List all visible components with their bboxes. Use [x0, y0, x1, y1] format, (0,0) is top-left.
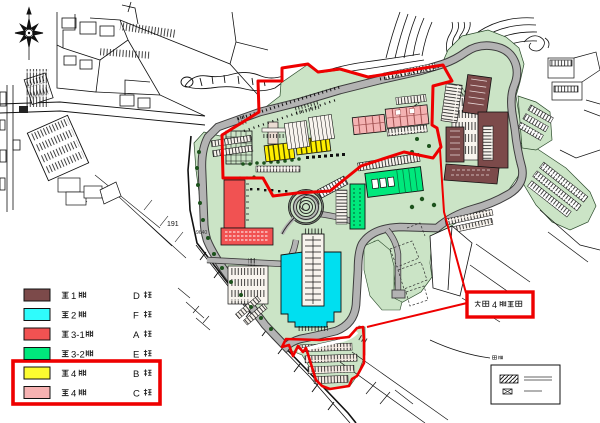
svg-text:E: E [133, 350, 139, 361]
svg-text:4: 4 [492, 300, 497, 310]
svg-text:3-1: 3-1 [71, 330, 85, 341]
svg-text:1: 1 [71, 291, 76, 302]
svg-text:2: 2 [71, 311, 76, 322]
svg-text:F: F [133, 311, 139, 322]
svg-text:4: 4 [71, 369, 76, 380]
svg-text:9640: 9640 [196, 230, 207, 236]
svg-text:3-2: 3-2 [71, 350, 85, 361]
svg-text:C: C [133, 389, 140, 400]
svg-text:A: A [133, 330, 140, 341]
svg-text:D: D [133, 291, 140, 302]
svg-text:4: 4 [71, 389, 76, 400]
svg-text:B: B [133, 369, 139, 380]
svg-text:191: 191 [167, 221, 179, 228]
